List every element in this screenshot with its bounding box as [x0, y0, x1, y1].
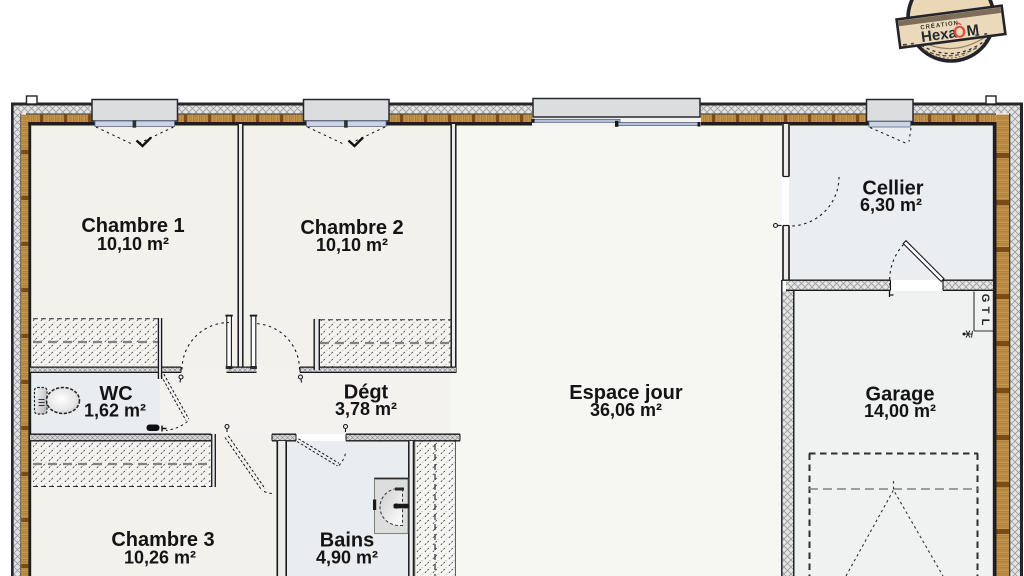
svg-text:3,78 m²: 3,78 m² — [335, 399, 397, 419]
svg-text:10,10 m²: 10,10 m² — [97, 234, 169, 254]
svg-text:14,00 m²: 14,00 m² — [864, 401, 936, 421]
svg-text:10,26 m²: 10,26 m² — [124, 548, 196, 568]
svg-text:6,30 m²: 6,30 m² — [860, 195, 922, 215]
svg-text:36,06 m²: 36,06 m² — [590, 400, 662, 420]
svg-text:10,10 m²: 10,10 m² — [316, 235, 388, 255]
svg-text:4,90 m²: 4,90 m² — [316, 548, 378, 568]
svg-text:M: M — [966, 21, 981, 39]
svg-text:T: T — [979, 307, 991, 314]
svg-text:G: G — [979, 294, 991, 303]
svg-text:1,62 m²: 1,62 m² — [84, 401, 146, 421]
svg-text:L: L — [979, 319, 991, 326]
